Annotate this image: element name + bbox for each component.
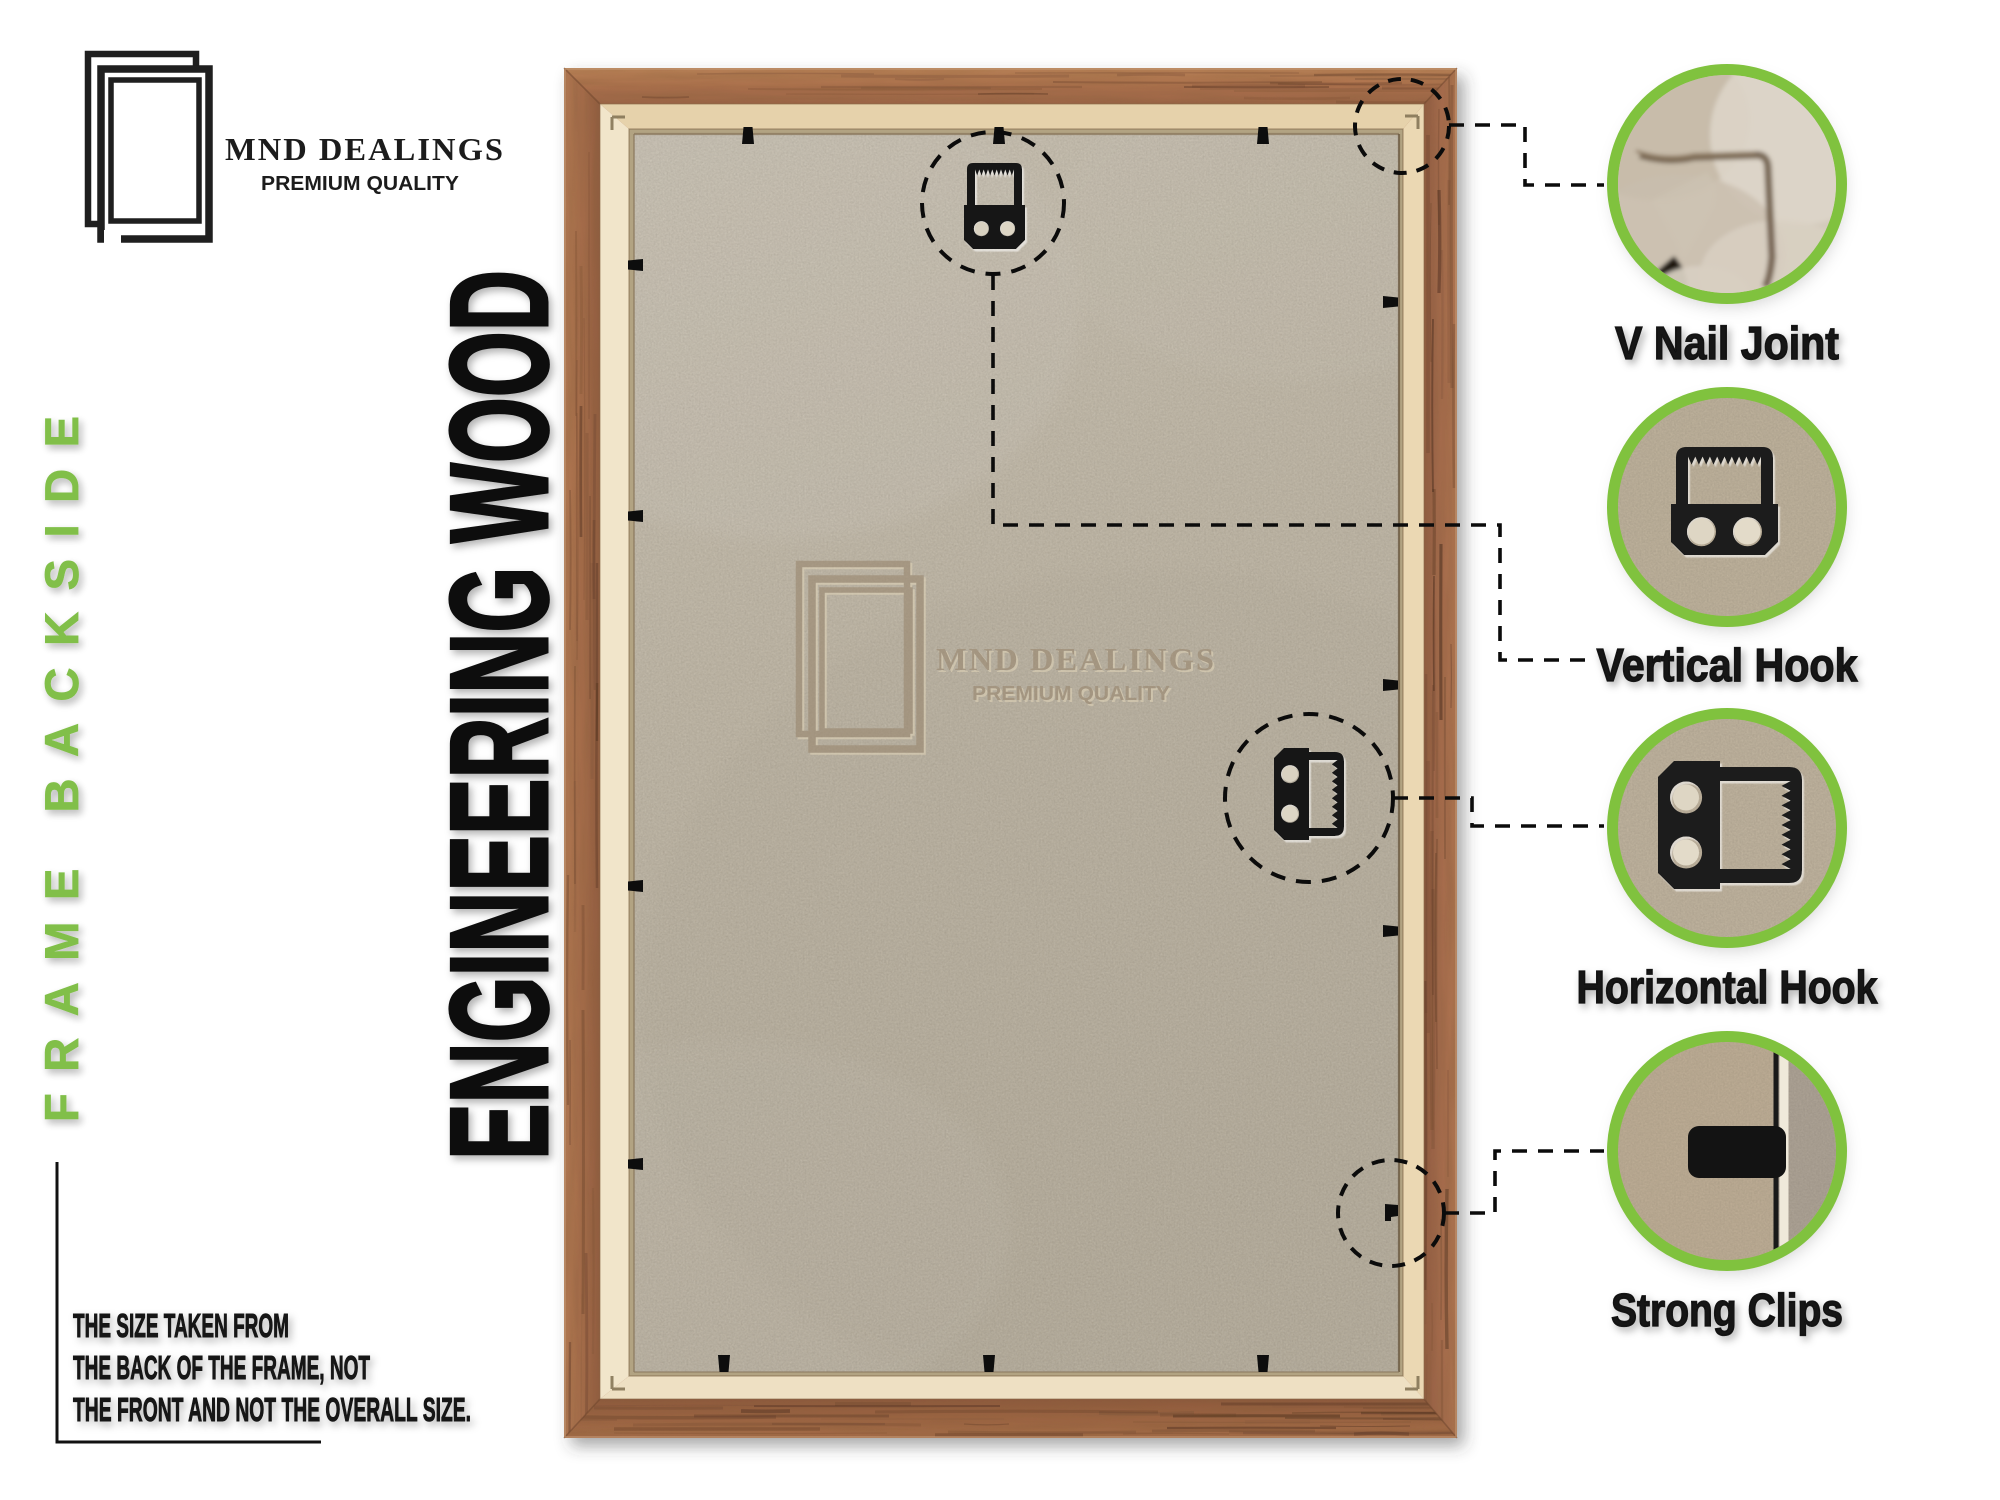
svg-text:Vertical Hook: Vertical Hook bbox=[1597, 639, 1858, 691]
svg-text:MND DEALINGS: MND DEALINGS bbox=[225, 131, 505, 167]
svg-text:MND DEALINGS: MND DEALINGS bbox=[936, 641, 1216, 677]
svg-text:THE SIZE TAKEN FROM: THE SIZE TAKEN FROM bbox=[73, 1307, 289, 1344]
svg-text:PREMIUM QUALITY: PREMIUM QUALITY bbox=[261, 173, 460, 195]
svg-text:PREMIUM QUALITY: PREMIUM QUALITY bbox=[972, 683, 1171, 705]
svg-text:ENGINEERING WOOD: ENGINEERING WOOD bbox=[422, 270, 577, 1160]
svg-text:Strong Clips: Strong Clips bbox=[1611, 1284, 1843, 1336]
svg-text:Horizontal Hook: Horizontal Hook bbox=[1577, 961, 1878, 1013]
svg-text:THE FRONT AND NOT THE OVERALL: THE FRONT AND NOT THE OVERALL SIZE. bbox=[73, 1391, 471, 1428]
svg-text:V Nail Joint: V Nail Joint bbox=[1615, 317, 1839, 369]
svg-text:THE BACK OF THE FRAME, NOT: THE BACK OF THE FRAME, NOT bbox=[73, 1349, 370, 1386]
